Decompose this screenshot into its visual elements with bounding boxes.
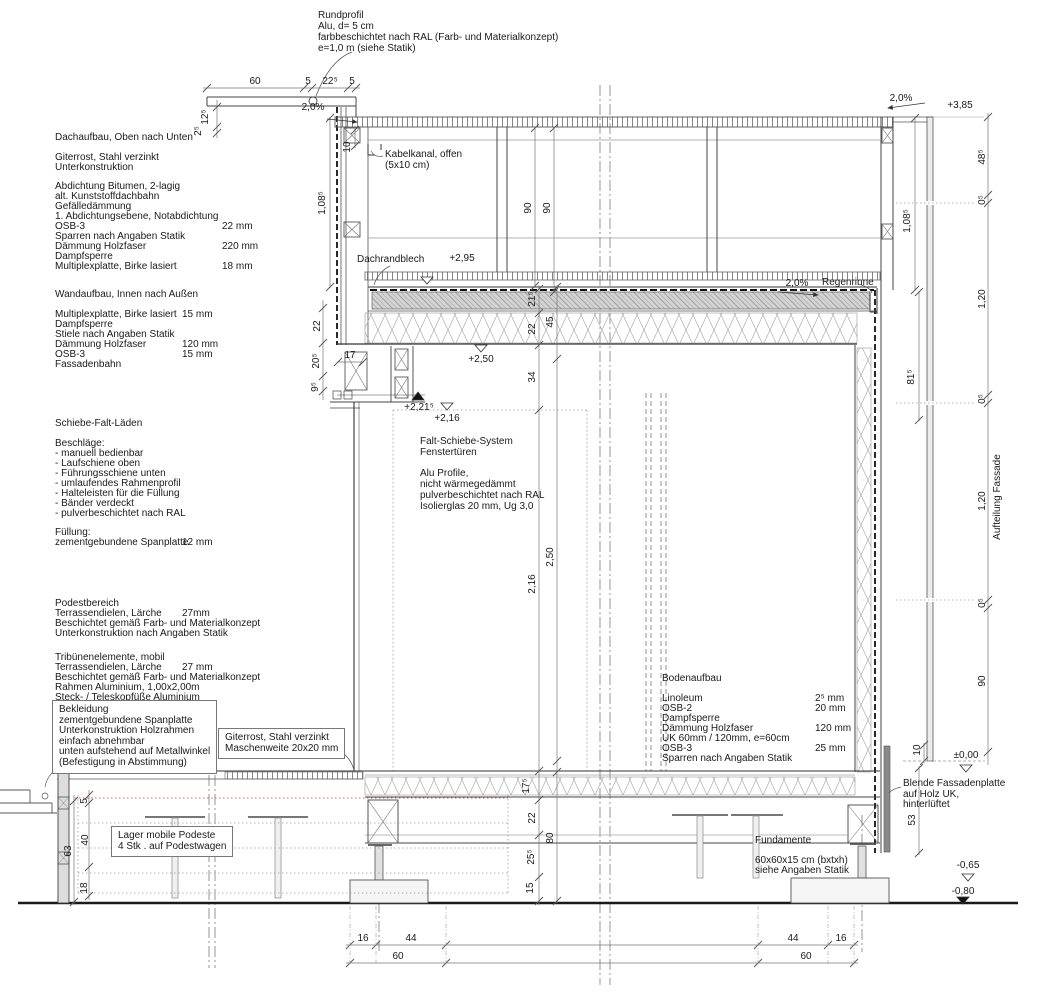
dim-right-10: 10 xyxy=(913,744,923,755)
slope-arrows xyxy=(327,103,925,295)
dim-left-205: 20⁵ xyxy=(312,353,322,368)
steel-post-right xyxy=(858,846,866,878)
fixing-detail xyxy=(42,793,48,799)
level-plus2215: +2,21⁵ xyxy=(404,403,433,413)
note-giterrost-box: Giterrost, Stahl verzinkt Maschenweite 2… xyxy=(218,728,345,759)
roof-insulation xyxy=(365,313,857,343)
blende-plate xyxy=(884,746,890,852)
floor-insulation xyxy=(365,777,855,795)
gutter xyxy=(870,288,877,314)
spec-podest: Podestbereich Terrassendielen, Lärche27m… xyxy=(55,599,260,639)
dim-top-5b: 5 xyxy=(349,77,355,87)
dim-bl-63: 63 xyxy=(64,845,74,856)
dim-bl-5: 5 xyxy=(80,798,90,804)
note-fundamente: Fundamente 60x60x15 cm (bxtxh) siehe Ang… xyxy=(755,836,849,877)
dim-bot-44l: 44 xyxy=(405,934,416,944)
retaining-wall xyxy=(58,757,69,903)
kabelkanal-bracket xyxy=(368,144,381,155)
dim-bot-16r: 16 xyxy=(835,934,846,944)
note-dachrandblech: Dachrandblech xyxy=(357,255,424,265)
architectural-section-drawing: Rundprofil Alu, d= 5 cm farbbeschichtet … xyxy=(0,0,1060,1000)
dim-top-60: 60 xyxy=(249,77,260,87)
dim-left-95: 9⁵ xyxy=(311,382,321,392)
dim-bot-44r: 44 xyxy=(787,934,798,944)
slope-label: 2,0% xyxy=(786,279,809,289)
dim-roof-34: 34 xyxy=(528,371,538,382)
dim-floor-255: 25⁵ xyxy=(527,849,537,864)
dim-90b: 90 xyxy=(543,202,553,213)
level-plus216: +2,16 xyxy=(434,414,459,424)
spec-bodenaufbau: Bodenaufbau Linoleum2⁵ mm OSB-220 mm Dam… xyxy=(662,674,792,764)
right-wall xyxy=(855,117,935,853)
level-plus295: +2,95 xyxy=(449,254,474,264)
wall-insulation xyxy=(857,348,871,772)
note-regenrinne: Regenrinne xyxy=(822,278,874,288)
dim-roof-45: 45 xyxy=(546,316,556,327)
roof-railing-zone xyxy=(335,117,893,272)
spec-tribuene: Tribünenelemente, mobil Terrassendielen,… xyxy=(55,653,260,703)
dim-kabel-10: 10 xyxy=(343,141,353,152)
spec-title: Wandaufbau, Innen nach Außen xyxy=(55,290,198,300)
foundation-right xyxy=(791,878,889,903)
dim-floor-22: 22 xyxy=(528,812,538,823)
dim-bl-18: 18 xyxy=(80,882,90,893)
dim-right-90: 90 xyxy=(978,675,988,686)
dim-right-815: 81⁵ xyxy=(907,369,917,384)
roof-grating-band xyxy=(335,117,893,127)
dim-90a: 90 xyxy=(524,202,534,213)
dim-25: 2⁵ xyxy=(194,126,204,136)
dim-216: 2,16 xyxy=(528,574,538,593)
dim-top-225: 22⁵ xyxy=(322,77,337,87)
slope-label: 2,0% xyxy=(302,103,325,113)
steps xyxy=(0,790,57,813)
spec-dachaufbau: Dachaufbau, Oben nach Unten Giterrost, S… xyxy=(55,133,218,272)
dim-left-22: 22 xyxy=(313,320,323,331)
dim-125: 12⁵ xyxy=(201,109,211,124)
shutter-panel xyxy=(927,117,933,761)
dim-floor-175: 17⁵ xyxy=(522,778,532,793)
dim-right-485: 48⁵ xyxy=(978,149,988,164)
dim-right-05c: 0⁵ xyxy=(978,598,988,608)
dim-right-120b: 1,20 xyxy=(978,491,988,510)
dim-bot-60l: 60 xyxy=(392,952,403,962)
dim-top-5a: 5 xyxy=(305,77,311,87)
dim-roof-215: 21⁵ xyxy=(528,291,538,306)
dim-250: 2,50 xyxy=(546,547,556,566)
note-kabelkanal: Kabelkanal, offen (5x10 cm) xyxy=(385,150,462,171)
dim-bot-16l: 16 xyxy=(357,934,368,944)
slope-label: 2,0% xyxy=(890,94,913,104)
level-zero: ±0,00 xyxy=(954,751,979,761)
dim-wall-17: 17 xyxy=(344,351,355,361)
level-minus080: -0,80 xyxy=(952,887,975,897)
note-rundprofil: Rundprofil Alu, d= 5 cm farbbeschichtet … xyxy=(318,10,558,54)
dim-roof-22: 22 xyxy=(528,323,538,334)
note-blende: Blende Fassadenplatte auf Holz UK, hinte… xyxy=(903,779,1005,811)
dim-right-05b: 0⁵ xyxy=(978,394,988,404)
level-minus065: -0,65 xyxy=(957,861,980,871)
note-lager-box: Lager mobile Podeste 4 Stk . auf Podestw… xyxy=(111,826,233,857)
dim-right-120a: 1,20 xyxy=(978,289,988,308)
gravel-layer xyxy=(372,292,870,309)
label-aufteilung-fassade: Aufteilung Fassade xyxy=(993,454,1003,540)
spec-wandaufbau: Wandaufbau, Innen nach Außen Multiplexpl… xyxy=(55,290,198,370)
dim-floor-80: 80 xyxy=(546,832,556,843)
note-falt-schiebe: Falt-Schiebe-System Fenstertüren Alu Pro… xyxy=(420,436,545,512)
spec-title: Bodenaufbau xyxy=(662,674,792,684)
dim-bl-40: 40 xyxy=(81,834,91,845)
dim-right-1085: 1,08⁵ xyxy=(903,209,913,233)
floor-grating-strip xyxy=(225,772,363,779)
level-plus250: +2,50 xyxy=(468,355,493,365)
foundation-left xyxy=(350,880,428,903)
dim-right-53: 53 xyxy=(908,814,918,825)
steel-post-left xyxy=(375,846,383,880)
dim-1085-left: 1,08⁵ xyxy=(318,191,328,215)
note-bekleidung-box: Bekleidung zementgebundene Spanplatte Un… xyxy=(52,700,217,774)
dim-right-05a: 0⁵ xyxy=(978,195,988,205)
spec-title: Schiebe-Falt-Läden xyxy=(55,419,188,429)
spec-laeden: Schiebe-Falt-Läden Beschläge: - manuell … xyxy=(55,419,188,548)
dim-floor-15: 15 xyxy=(526,882,536,893)
level-plus385: +3,85 xyxy=(947,101,972,111)
dim-bot-60r: 60 xyxy=(800,952,811,962)
post-caps xyxy=(145,815,783,817)
